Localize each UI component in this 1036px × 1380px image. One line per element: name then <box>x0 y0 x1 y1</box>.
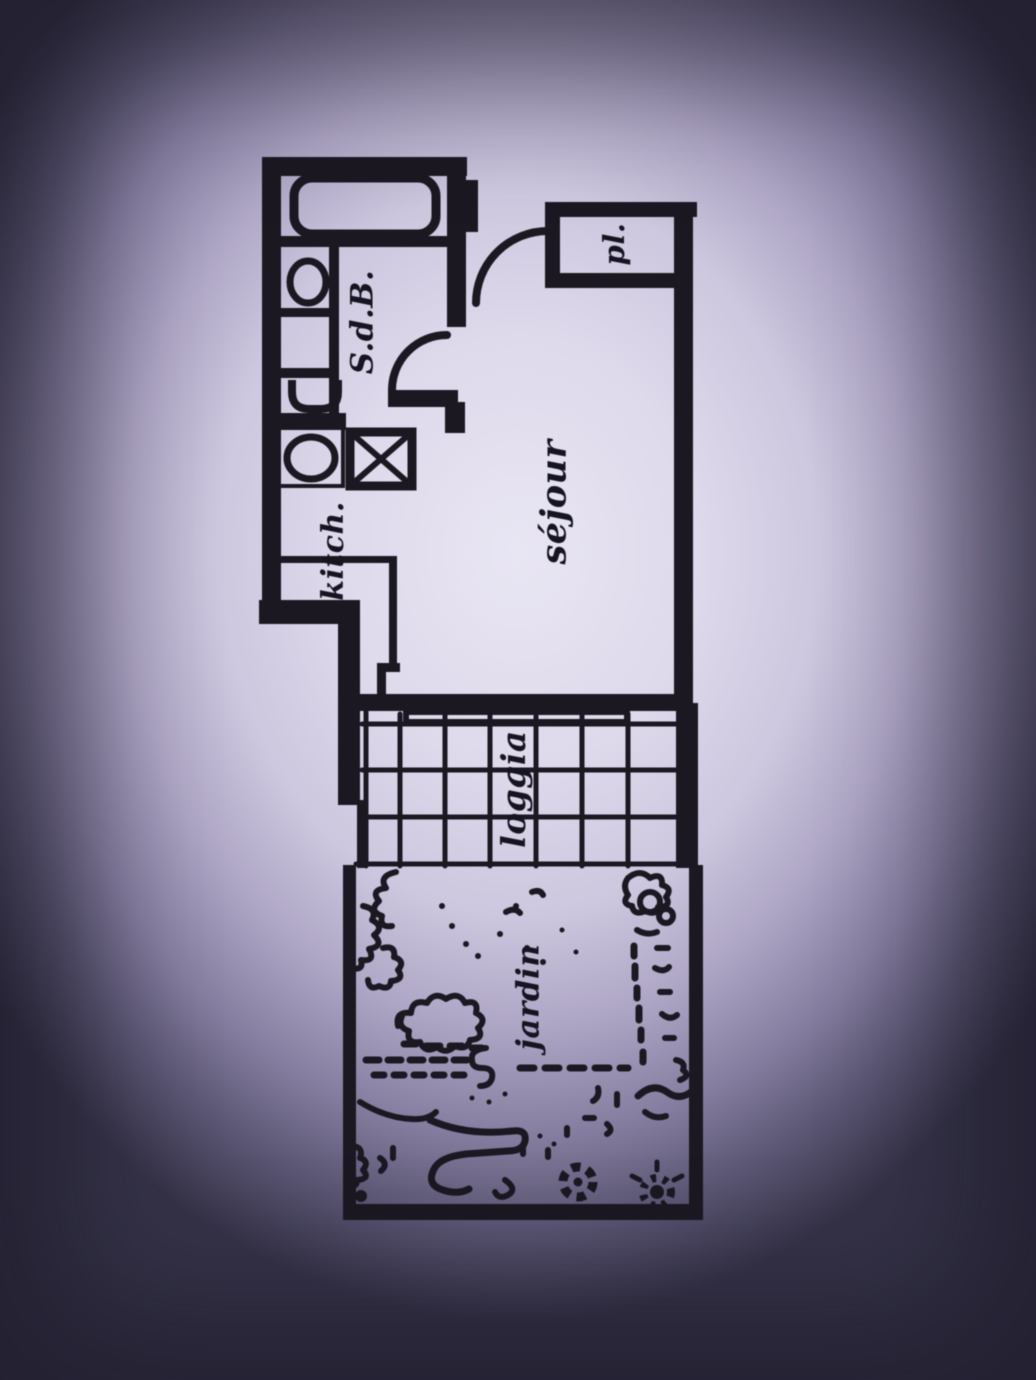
wall-left <box>262 157 281 623</box>
bathtub <box>294 178 436 234</box>
stove-x-mark <box>350 432 412 486</box>
garden-dots <box>439 903 579 1147</box>
wall-closet-left <box>545 215 560 275</box>
bathroom-door-arc <box>392 335 447 390</box>
doors <box>392 231 548 390</box>
closet-label: pl. <box>597 223 631 266</box>
garden-label: jardin <box>511 944 547 1057</box>
wall-left-mid <box>338 620 360 805</box>
floorplan-photo: S.d.B. pl. kitch. séjour loggia jardin <box>0 0 1036 1380</box>
bathroom-sink <box>290 261 326 303</box>
entry-door-arc <box>476 231 548 303</box>
wall-sejour-bottom <box>355 694 693 711</box>
garden-shrubs-right <box>625 873 696 1117</box>
wall-garden-left <box>343 865 356 1220</box>
room-labels: S.d.B. pl. kitch. séjour loggia jardin <box>316 223 631 1057</box>
line-sink-shelf <box>281 308 339 317</box>
wall-top <box>262 157 467 176</box>
loggia-label: loggia <box>494 730 533 848</box>
wall-bath-door-v <box>445 402 465 433</box>
line-kitchen-right <box>389 556 397 668</box>
garden-stone <box>355 1190 367 1202</box>
kitchen-fixtures <box>279 428 412 486</box>
wall-loggia-right <box>676 703 698 868</box>
living-room-label: séjour <box>534 438 575 566</box>
flower-icon <box>563 1167 593 1197</box>
kitchen-label: kitch. <box>316 501 351 601</box>
wall-closet-bottom <box>545 273 693 288</box>
floor-plan-drawing: S.d.B. pl. kitch. séjour loggia jardin <box>0 0 1036 1380</box>
loggia-window-line-1 <box>405 711 628 715</box>
garden-path-dashes <box>366 1060 628 1075</box>
wall-entry-nub <box>466 180 478 232</box>
wall-bath-right <box>447 176 466 327</box>
bathroom-label: S.d.B. <box>345 270 381 375</box>
line-kitchen-step-v <box>377 663 386 697</box>
kitchen-sink <box>287 437 335 479</box>
wall-closet-top <box>545 202 697 217</box>
line-wc-shelf <box>281 368 339 378</box>
wall-garden-right <box>689 865 703 1220</box>
